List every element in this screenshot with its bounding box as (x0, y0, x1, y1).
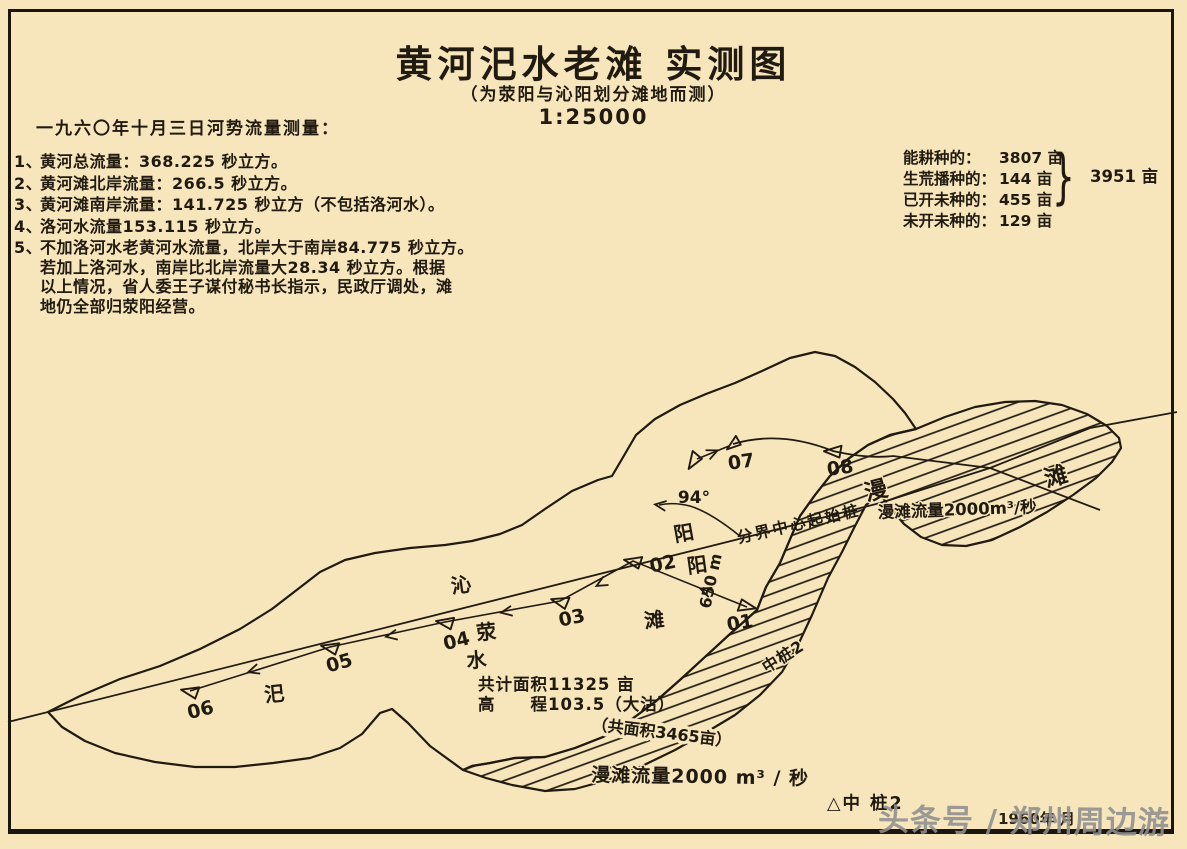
stat-total: 3951 亩 (1090, 163, 1158, 187)
note-number: 1、 (14, 152, 40, 172)
marker-label-06: 06 (185, 696, 216, 724)
marker-label-05: 05 (324, 649, 355, 677)
segment-07-arrow (697, 446, 729, 459)
note-number: 3、 (14, 195, 40, 215)
char-xing: 荥 (475, 619, 497, 645)
note-text: 不加洛河水老黄河水流量，北岸大于南岸84.775 秒立方。 若加上洛河水，南岸比… (40, 238, 474, 316)
band-flow-label: 漫滩流量2000 m³ / 秒 (591, 763, 809, 790)
stat-row: 未开未种的： 129 亩 (903, 211, 1073, 232)
note-item: 3、 黄河滩南岸流量：141.725 秒立方（不包括洛河水）。 (14, 195, 492, 215)
survey-notes-heading: 一九六〇年十月三日河势流量测量： (36, 114, 492, 139)
river-band-hatched (463, 401, 1121, 791)
marker-triangle-icon (180, 683, 200, 699)
note-number: 5、 (14, 238, 40, 316)
marker-label-08: 08 (826, 455, 855, 480)
page-subtitle: （为荥阳与沁阳划分滩地而测） (0, 80, 1187, 105)
stat-label: 已开未种的： (903, 190, 999, 211)
char-si: 汜 (263, 681, 285, 707)
stat-label: 未开未种的： (903, 211, 999, 232)
char-yang-north: 阳 (672, 520, 696, 547)
stat-label: 能耕种的： (903, 148, 999, 169)
note-text: 黄河总流量：368.225 秒立方。 (40, 152, 287, 172)
stat-value: 144 亩 (999, 169, 1052, 190)
stat-label: 生荒播种的： (903, 169, 999, 190)
note-item: 2、 黄河滩北岸流量：266.5 秒立方。 (14, 174, 492, 194)
note-text: 洛河水流量153.115 秒立方。 (40, 217, 271, 237)
chevron-arrow-icon (385, 630, 398, 642)
marker-label-03: 03 (557, 605, 587, 632)
chevron-arrow-icon (500, 606, 513, 618)
angle-arc-arrow (659, 504, 741, 537)
stat-value: 455 亩 (999, 190, 1052, 211)
land-statistics: 能耕种的： 3807 亩 生荒播种的： 144 亩 已开未种的： 455 亩 未… (903, 148, 1073, 232)
marker-label-01: 01 (725, 610, 755, 636)
total-area-line2: 高 程103.5（大沽） (478, 694, 675, 714)
stat-row: 已开未种的： 455 亩 (903, 190, 1073, 211)
note-number: 2、 (14, 174, 40, 194)
note-item: 4、 洛河水流量153.115 秒立方。 (14, 217, 492, 237)
survey-notes: 一九六〇年十月三日河势流量测量： 1、 黄河总流量：368.225 秒立方。 2… (14, 114, 492, 318)
stat-row: 生荒播种的： 144 亩 (903, 169, 1073, 190)
note-text: 黄河滩南岸流量：141.725 秒立方（不包括洛河水）。 (40, 195, 444, 215)
marker-label-07: 07 (727, 449, 756, 474)
note-text-line: 以上情况，省人委王子谋付秘书长指示，民政厅调处，滩 (40, 277, 474, 297)
marker-triangle-icon (724, 436, 742, 453)
note-text: 黄河滩北岸流量：266.5 秒立方。 (40, 174, 297, 194)
brace-icon: } (1052, 143, 1075, 212)
note-item: 5、 不加洛河水老黄河水流量，北岸大于南岸84.775 秒立方。 若加上洛河水，… (14, 238, 492, 316)
watermark: 头条号 / 郑州周边游 (878, 794, 1187, 842)
marker-triangle-icon (683, 451, 703, 472)
marker-label-02: 02 (648, 551, 678, 578)
note-item: 1、 黄河总流量：368.225 秒立方。 (14, 152, 492, 172)
char-qin: 沁 (449, 572, 472, 599)
angle-label: 94° (678, 488, 710, 508)
note-text-line: 地仍全部归荥阳经营。 (40, 297, 474, 317)
stat-value: 129 亩 (999, 211, 1052, 232)
stat-row: 能耕种的： 3807 亩 (903, 148, 1073, 169)
note-text-line: 不加洛河水老黄河水流量，北岸大于南岸84.775 秒立方。 (40, 238, 474, 258)
note-number: 4、 (14, 217, 40, 237)
scanned-survey-map: 06 05 04 03 02 01 07 08 沁 阳 阳 荥 水 滩 汜 94… (0, 0, 1187, 849)
note-text-line: 若加上洛河水，南岸比北岸流量大28.34 秒立方。根据 (40, 258, 474, 278)
total-area-line1: 共计面积11325 亩 (478, 674, 635, 694)
char-shui: 水 (466, 647, 489, 672)
char-tan: 滩 (643, 607, 665, 633)
chevron-arrow-icon (594, 576, 608, 590)
